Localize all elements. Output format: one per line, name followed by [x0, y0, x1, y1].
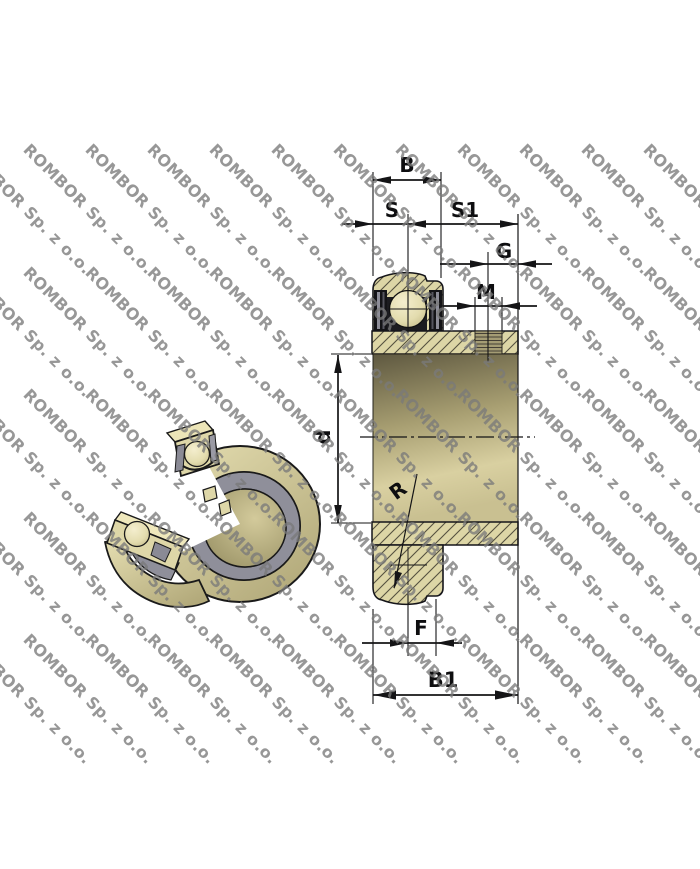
label-M: M	[476, 280, 496, 304]
label-G: G	[496, 239, 512, 263]
ball-3d-bottom	[125, 522, 150, 547]
inner-ring-bottom-band	[372, 522, 518, 545]
label-B1: B1	[428, 668, 459, 692]
bearing-drawing-page: B S S1 G M d R F B1	[0, 0, 700, 869]
label-B: B	[399, 153, 414, 177]
label-F: F	[414, 616, 428, 640]
bearing-cross-section-drawing: B S S1 G M d R F B1	[0, 0, 700, 869]
bearing-3d-view	[75, 421, 320, 607]
label-S: S	[385, 198, 399, 222]
section-view	[372, 273, 518, 605]
label-d: d	[311, 429, 335, 444]
label-S1: S1	[451, 198, 479, 222]
ball-3d-top	[185, 442, 210, 467]
